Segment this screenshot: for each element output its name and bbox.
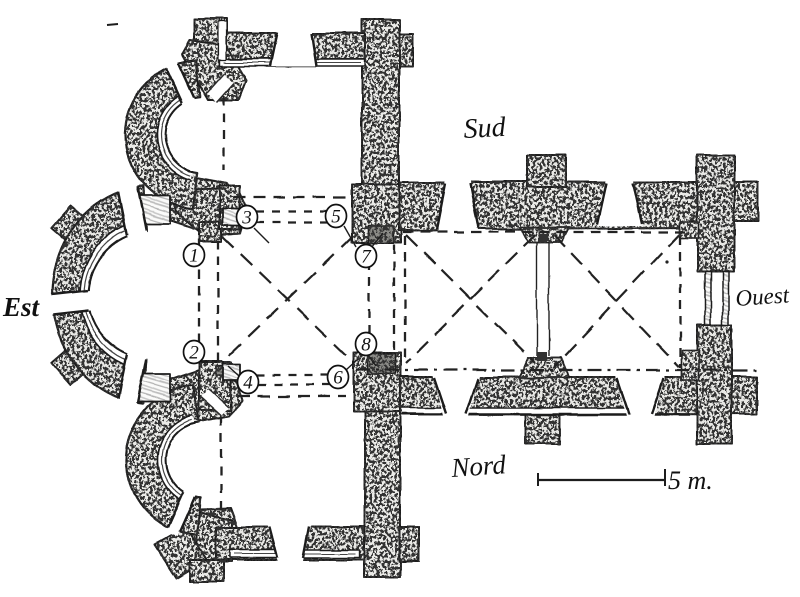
svg-text:4: 4: [243, 373, 253, 394]
svg-text:3: 3: [241, 208, 252, 229]
svg-text:5: 5: [331, 207, 341, 228]
svg-text:6: 6: [333, 368, 343, 389]
svg-text:Nord: Nord: [449, 449, 507, 483]
svg-text:Est: Est: [2, 292, 41, 322]
svg-text:5 m.: 5 m.: [668, 466, 713, 495]
svg-text:2: 2: [189, 343, 199, 364]
svg-text:1: 1: [189, 246, 199, 267]
svg-text:7: 7: [361, 247, 372, 268]
svg-text:8: 8: [361, 335, 371, 356]
svg-text:Sud: Sud: [463, 112, 508, 145]
svg-text:Ouest: Ouest: [735, 282, 791, 311]
